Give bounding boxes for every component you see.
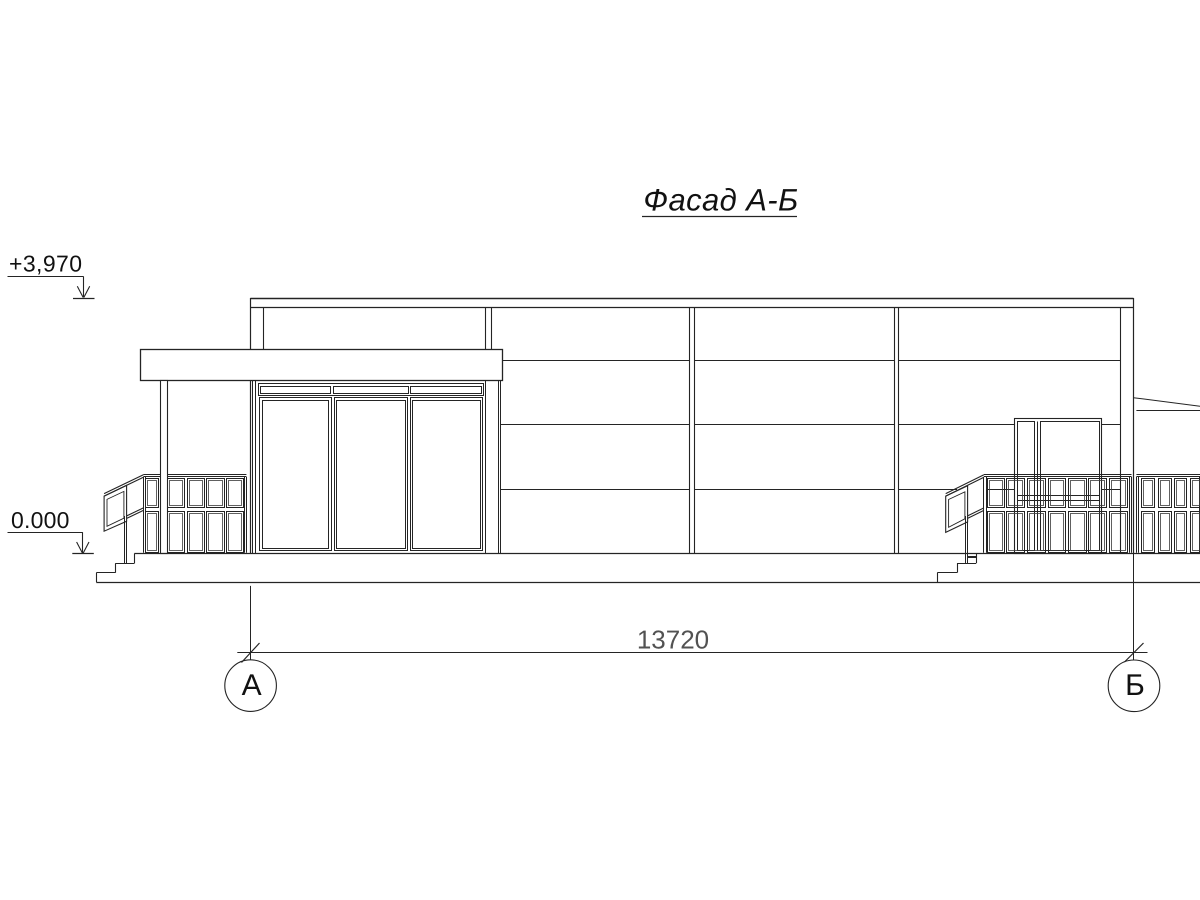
svg-text:А: А — [242, 669, 262, 702]
svg-text:+3,970: +3,970 — [9, 251, 82, 277]
svg-text:Б: Б — [1125, 669, 1145, 702]
svg-text:0.000: 0.000 — [11, 507, 70, 533]
svg-text:13720: 13720 — [637, 625, 709, 655]
svg-text:Фасад А-Б: Фасад А-Б — [643, 183, 798, 218]
